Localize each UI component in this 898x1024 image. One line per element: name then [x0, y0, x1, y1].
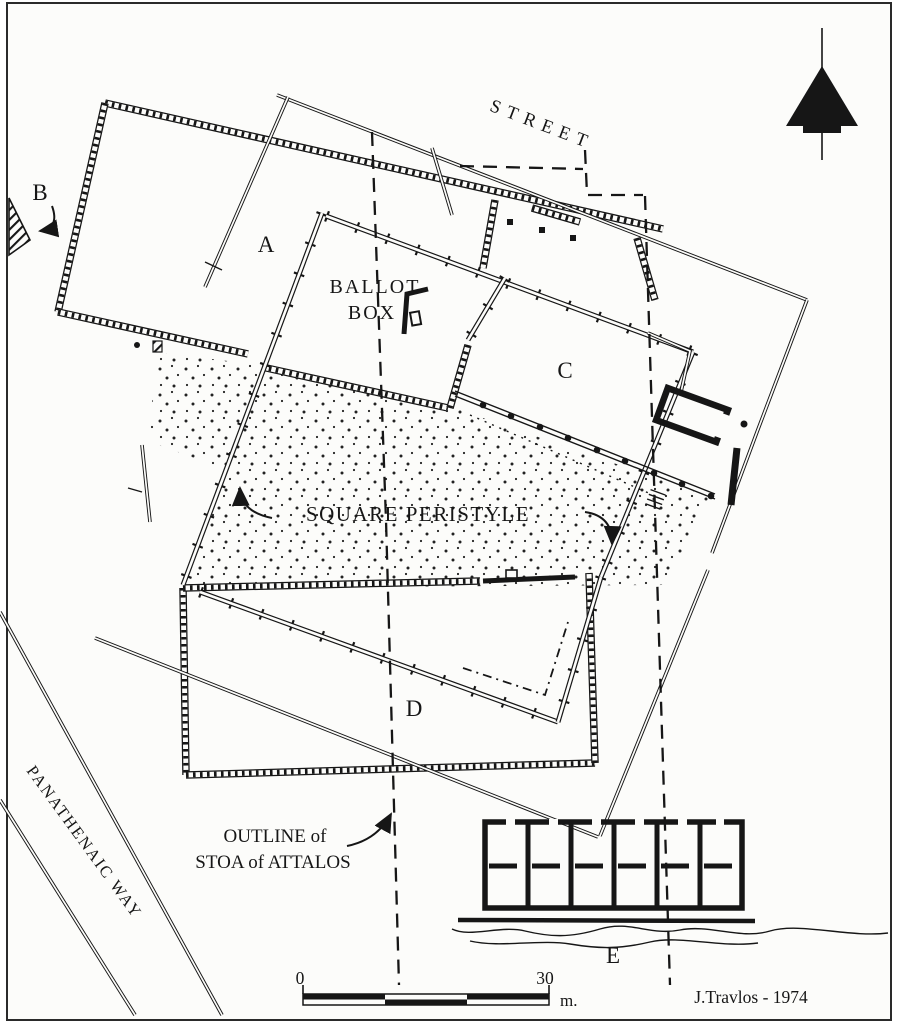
building-letter-a: A — [258, 232, 275, 257]
scale-unit-label: m. — [560, 991, 577, 1010]
agora-site-plan: 0 30 m. STREET BALLOT BOX SQUARE PERISTY… — [0, 0, 898, 1024]
ballot-box-label-line1: BALLOT — [330, 276, 421, 298]
outline-label-line1: OUTLINE of — [224, 826, 328, 847]
building-letter-c: C — [557, 358, 572, 383]
scale-end-label: 30 — [536, 968, 554, 988]
building-letter-d: D — [406, 696, 423, 721]
ground-line — [458, 920, 755, 921]
building-letter-e: E — [606, 943, 620, 968]
attribution-label: J.Travlos - 1974 — [694, 987, 808, 1007]
outline-label-line2: STOA of ATTALOS — [195, 852, 350, 873]
ballot-box-label-line2: BOX — [348, 302, 396, 324]
scale-start-label: 0 — [296, 968, 305, 988]
building-letter-b: B — [32, 180, 47, 205]
square-peristyle-label: SQUARE PERISTYLE — [306, 502, 530, 526]
site-plan-page: 0 30 m. STREET BALLOT BOX SQUARE PERISTY… — [0, 0, 898, 1024]
